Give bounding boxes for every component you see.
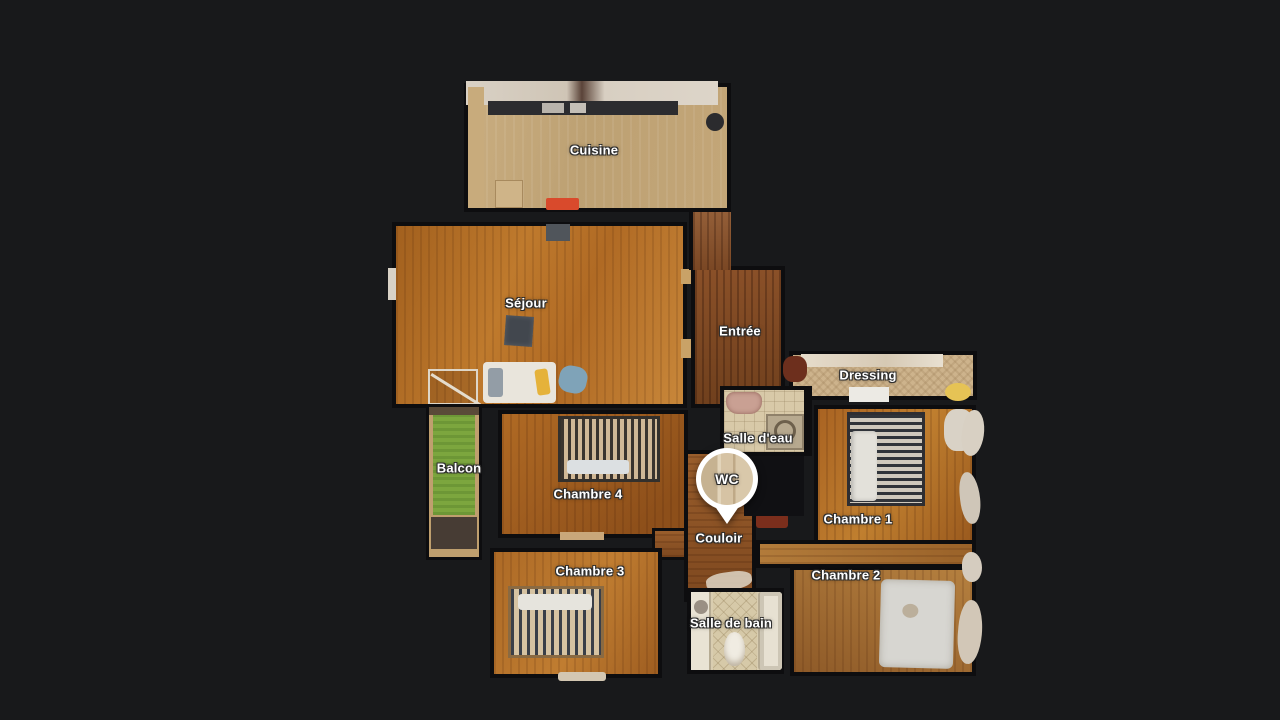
scan-fragment xyxy=(962,552,982,582)
room-salle-de-bain[interactable] xyxy=(687,588,784,674)
kitchen-red-mat xyxy=(546,198,579,210)
kitchen-sink xyxy=(542,103,564,113)
pillow-strip-chambre-4 xyxy=(567,460,629,474)
shower-drain xyxy=(774,420,796,442)
room-cuisine[interactable] xyxy=(464,83,731,212)
kitchen-entry-passage[interactable] xyxy=(689,206,731,270)
kitchen-crate xyxy=(495,180,523,208)
room-salle-deau[interactable] xyxy=(720,386,812,456)
window-left-mark xyxy=(388,268,396,300)
sofa-pillow-gray xyxy=(488,368,503,397)
wardrobe-white-box xyxy=(849,387,889,402)
room-chambre-4[interactable] xyxy=(498,410,688,538)
kitchen-hob xyxy=(570,103,586,113)
mattress-chambre-2 xyxy=(879,579,955,669)
room-dressing[interactable] xyxy=(789,351,977,400)
pouf xyxy=(556,363,589,395)
pin-photo-preview xyxy=(701,453,753,505)
room-balcon[interactable] xyxy=(426,404,482,560)
floorplan-view: Cuisine Séjour Entrée Dressing Salle d'e… xyxy=(0,0,1280,720)
hallway-red-item xyxy=(756,514,788,528)
dressing-yellow-item xyxy=(945,383,971,401)
door-tab-chambre-3 xyxy=(558,672,606,681)
wardrobe-top xyxy=(801,354,943,367)
duvet-chambre-1 xyxy=(851,431,877,501)
pin-tip xyxy=(714,505,740,524)
door-tab-chambre-4 xyxy=(560,532,604,540)
bathtub xyxy=(758,592,782,670)
balcony-dark-end xyxy=(431,517,477,549)
kitchen-side-strip xyxy=(468,87,484,208)
vanity-sink xyxy=(694,600,708,614)
room-chambre-1[interactable] xyxy=(814,405,976,545)
mattress-stain xyxy=(902,604,918,618)
pillow-strip-chambre-3 xyxy=(518,594,592,610)
toilet xyxy=(724,632,745,666)
room-sejour[interactable] xyxy=(392,222,687,408)
wc-location-pin[interactable]: WC xyxy=(696,448,758,528)
balcony-grass xyxy=(433,415,475,515)
tv-unit xyxy=(546,224,570,241)
kitchen-stool xyxy=(706,113,724,131)
room-chambre-3[interactable] xyxy=(490,548,662,678)
bathroom-sink xyxy=(726,392,762,414)
room-chambre-2[interactable] xyxy=(790,566,976,676)
room-chambre-2-upper[interactable] xyxy=(756,540,976,568)
coffee-table xyxy=(504,315,534,347)
dressing-red-item xyxy=(783,356,807,382)
